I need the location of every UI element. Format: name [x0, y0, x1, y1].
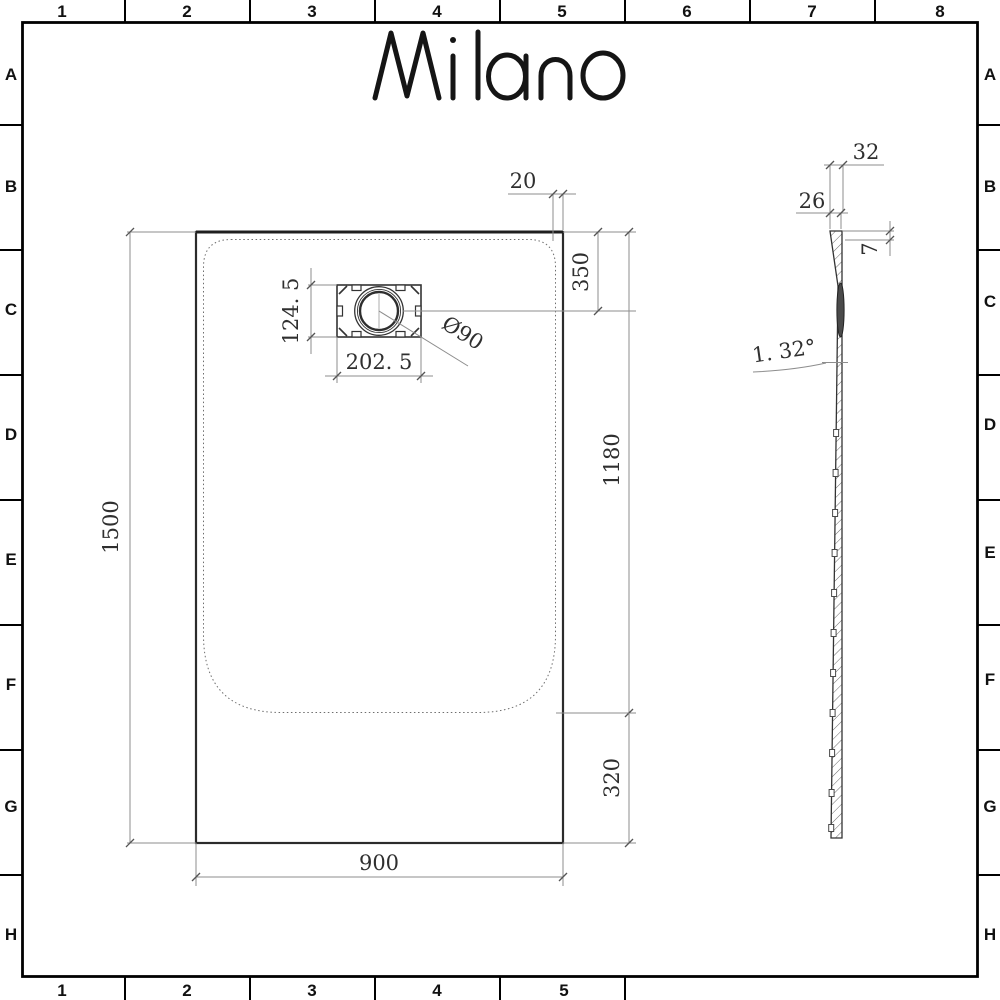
grid-row-label: G — [983, 797, 996, 816]
grid-col-label: 1 — [57, 981, 66, 1000]
grid-col-label: 4 — [432, 981, 442, 1000]
top-strip-dividers — [125, 0, 875, 22]
bottom-column-numbers: 1 2 3 4 5 — [57, 981, 568, 1000]
dim-drain-width: 202. 5 — [325, 337, 433, 383]
grid-col-label: 3 — [307, 2, 316, 21]
grid-col-label: 2 — [182, 2, 191, 21]
grid-col-label: 6 — [682, 2, 691, 21]
dim-label-drain-width: 202. 5 — [346, 350, 413, 374]
grid-col-label: 7 — [807, 2, 816, 21]
dim-basin-end-to-edge: 320 — [600, 713, 633, 847]
bottom-strip-dividers — [125, 977, 625, 1000]
grid-row-label: H — [5, 925, 17, 944]
milano-logo: Milano — [375, 32, 623, 98]
dim-label-overall-height: 1500 — [99, 500, 123, 553]
dim-label-top-to-basin-end: 1180 — [600, 433, 624, 486]
logo-letter-n — [541, 60, 570, 99]
logo-letter-o — [583, 53, 623, 98]
dim-label-drain-diameter: Ø90 — [438, 311, 488, 355]
side-view: 32 26 7 1. 32° — [751, 140, 894, 838]
drawing-sheet: 1 2 3 4 5 6 7 8 1 2 3 4 5 A B C D E F G … — [0, 0, 1000, 1000]
dim-rim-width: 26 — [796, 189, 848, 229]
grid-row-label: E — [984, 543, 995, 562]
grid-row-label: F — [985, 670, 995, 689]
front-view: 124. 5 202. 5 Ø90 20 — [99, 169, 636, 886]
logo-letter-a-bowl — [489, 55, 526, 98]
dim-label-overall-width: 900 — [359, 851, 399, 875]
left-strip-dividers — [0, 125, 22, 875]
technical-drawing: 1 2 3 4 5 6 7 8 1 2 3 4 5 A B C D E F G … — [0, 0, 1000, 1000]
logo-letter-M — [375, 33, 439, 98]
grid-row-label: A — [984, 65, 996, 84]
grid-col-label: 5 — [559, 981, 568, 1000]
grid-row-label: H — [984, 925, 996, 944]
right-strip-dividers — [978, 125, 1000, 875]
grid-row-label: D — [5, 425, 17, 444]
dim-label-basin-end-to-edge: 320 — [600, 758, 624, 798]
dim-base-angle: 1. 32° — [751, 335, 848, 372]
dim-overall-depth: 32 — [824, 140, 884, 229]
grid-col-label: 3 — [307, 981, 316, 1000]
section-drain-bump — [837, 283, 844, 337]
dim-label-top-to-drain: 350 — [569, 252, 593, 292]
logo-letter-i-dot — [450, 37, 456, 43]
grid-row-label: E — [5, 550, 16, 569]
grid-col-label: 4 — [432, 2, 442, 21]
grid-row-label: A — [5, 65, 17, 84]
grid-col-label: 8 — [935, 2, 944, 21]
sheet-border: 1 2 3 4 5 6 7 8 1 2 3 4 5 A B C D E F G … — [0, 0, 1000, 1000]
dim-edge-lip: 7 — [843, 221, 894, 256]
dim-top-to-drain: 350 — [569, 228, 602, 315]
right-row-letters: A B C D E F G H — [983, 65, 996, 944]
grid-row-label: C — [5, 300, 17, 319]
dim-top-to-basin-end: 1180 — [600, 228, 633, 717]
dim-label-overall-depth: 32 — [853, 140, 880, 164]
dim-overall-height: 1500 — [99, 228, 196, 847]
dim-overall-width: 900 — [192, 843, 567, 886]
dim-label-rim-width: 26 — [799, 189, 826, 213]
grid-col-label: 2 — [182, 981, 191, 1000]
grid-col-label: 1 — [57, 2, 66, 21]
grid-row-label: C — [984, 292, 996, 311]
dim-label-base-angle: 1. 32° — [751, 335, 818, 368]
dim-drain-height: 124. 5 — [279, 268, 337, 354]
dim-label-edge-lip: 7 — [858, 242, 882, 255]
grid-col-label: 5 — [557, 2, 566, 21]
grid-row-label: D — [984, 415, 996, 434]
dim-label-rim-offset: 20 — [510, 169, 537, 193]
dim-label-drain-height: 124. 5 — [279, 278, 303, 345]
dim-rim-offset: 20 — [508, 169, 576, 241]
grid-row-label: B — [984, 177, 996, 196]
grid-row-label: G — [4, 797, 17, 816]
grid-row-label: F — [6, 675, 16, 694]
grid-row-label: B — [5, 177, 17, 196]
left-row-letters: A B C D E F G H — [4, 65, 17, 944]
